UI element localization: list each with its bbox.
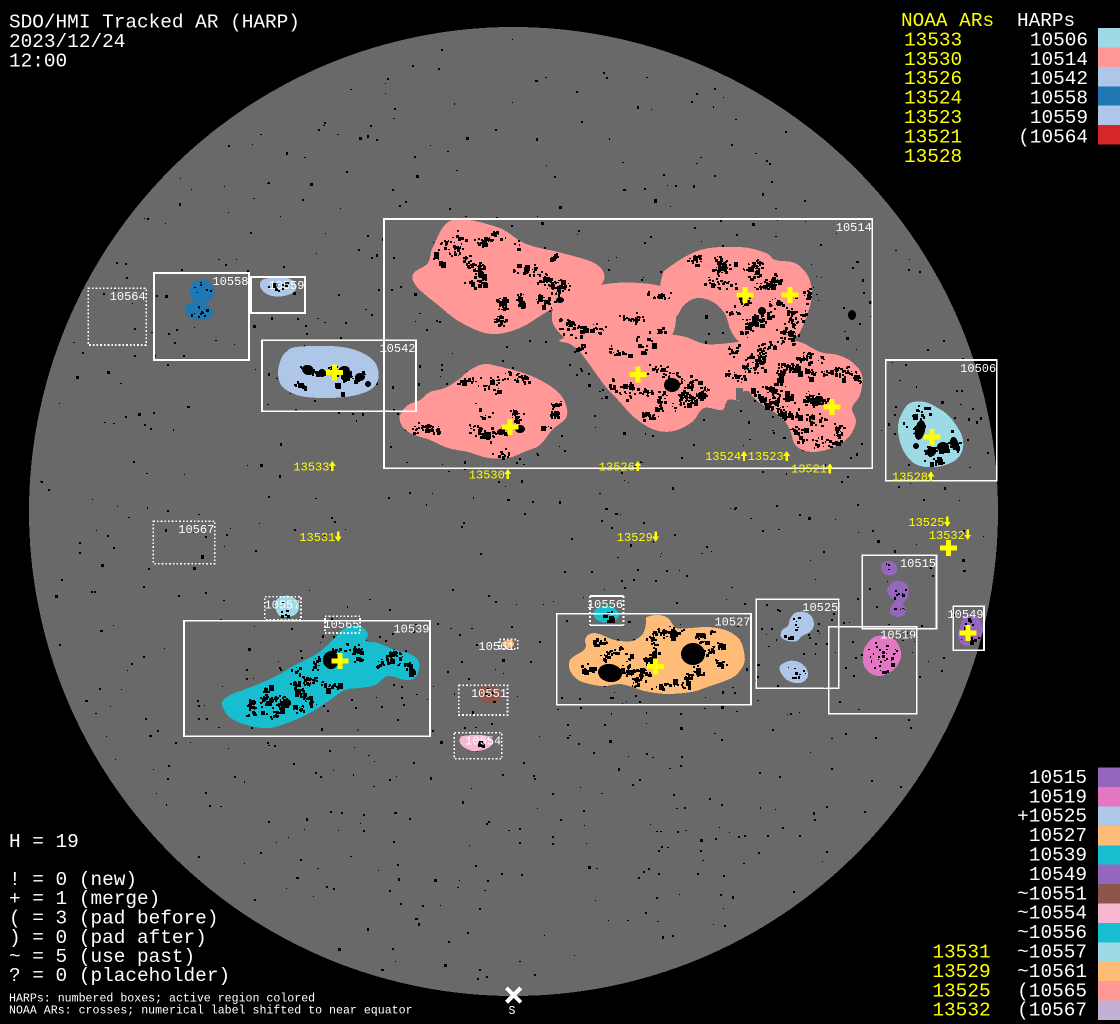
svg-text:13532: 13532 [932, 1000, 990, 1022]
svg-text:10567: 10567 [178, 523, 214, 537]
svg-text:13521: 13521 [791, 463, 827, 477]
svg-text:13530: 13530 [469, 468, 505, 482]
svg-text:10519: 10519 [880, 629, 916, 643]
svg-text:12:00: 12:00 [9, 51, 67, 73]
svg-text:13528: 13528 [904, 146, 962, 168]
svg-text:(10567: (10567 [1017, 1000, 1087, 1022]
svg-text:H = 19: H = 19 [9, 831, 79, 853]
svg-text:10549: 10549 [947, 608, 983, 622]
svg-text:10525: 10525 [802, 601, 838, 615]
svg-text:NOAA ARs: crosses; numerical l: NOAA ARs: crosses; numerical label shift… [9, 1005, 413, 1018]
svg-text:13529: 13529 [617, 531, 653, 545]
svg-text:10506: 10506 [960, 362, 996, 376]
svg-text:13526: 13526 [599, 460, 635, 474]
svg-text:10554: 10554 [465, 735, 501, 749]
svg-text:10557: 10557 [264, 599, 300, 613]
svg-text:10561: 10561 [478, 640, 514, 654]
svg-text:(10564: (10564 [1018, 126, 1088, 148]
svg-text:13531: 13531 [299, 531, 335, 545]
svg-text:10551: 10551 [471, 687, 507, 701]
svg-text:10514: 10514 [836, 221, 872, 235]
svg-text:10527: 10527 [714, 615, 750, 629]
svg-text:10558: 10558 [212, 275, 248, 289]
svg-text:13523: 13523 [748, 450, 784, 464]
svg-text:13532: 13532 [929, 529, 965, 543]
svg-text:10559: 10559 [268, 279, 304, 293]
svg-text:13525: 13525 [908, 516, 944, 530]
svg-text:13533: 13533 [293, 460, 329, 474]
svg-text:13524: 13524 [705, 450, 741, 464]
svg-text:10539: 10539 [393, 623, 429, 637]
svg-text:13528: 13528 [892, 471, 928, 485]
svg-text:? = 0 (placeholder): ? = 0 (placeholder) [9, 965, 230, 987]
svg-text:10556: 10556 [587, 598, 623, 612]
svg-text:10564: 10564 [110, 290, 146, 304]
svg-text:S: S [509, 1005, 516, 1018]
svg-text:10542: 10542 [379, 342, 415, 356]
svg-text:10515: 10515 [900, 557, 936, 571]
